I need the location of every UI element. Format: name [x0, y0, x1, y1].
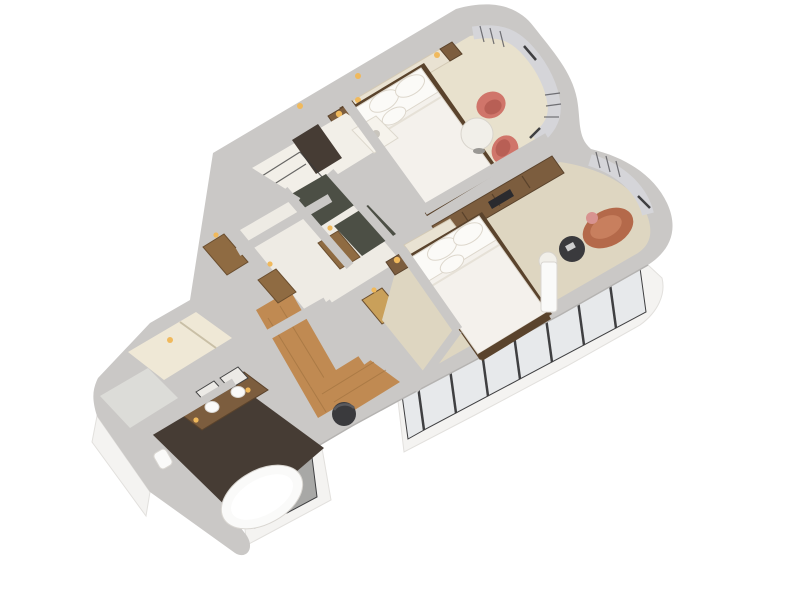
- niche-light: [167, 337, 173, 343]
- sconce-light: [297, 103, 303, 109]
- sconce-light: [355, 73, 361, 79]
- bedside-lamp: [394, 257, 400, 263]
- vanity-light: [193, 417, 198, 422]
- column: [541, 262, 557, 312]
- floorplan-render: [0, 0, 800, 600]
- sconce-light: [434, 52, 440, 58]
- round-table: [461, 118, 493, 150]
- door-sconce: [213, 232, 218, 237]
- vanity-light: [245, 387, 250, 392]
- screenshot-canvas: [0, 0, 800, 600]
- door-sconce: [371, 287, 376, 292]
- sink: [231, 387, 245, 398]
- door-sconce: [267, 261, 272, 266]
- sink: [205, 402, 219, 413]
- door-sconce: [327, 225, 332, 230]
- sofa-pillow: [586, 212, 598, 224]
- table-base: [473, 148, 485, 154]
